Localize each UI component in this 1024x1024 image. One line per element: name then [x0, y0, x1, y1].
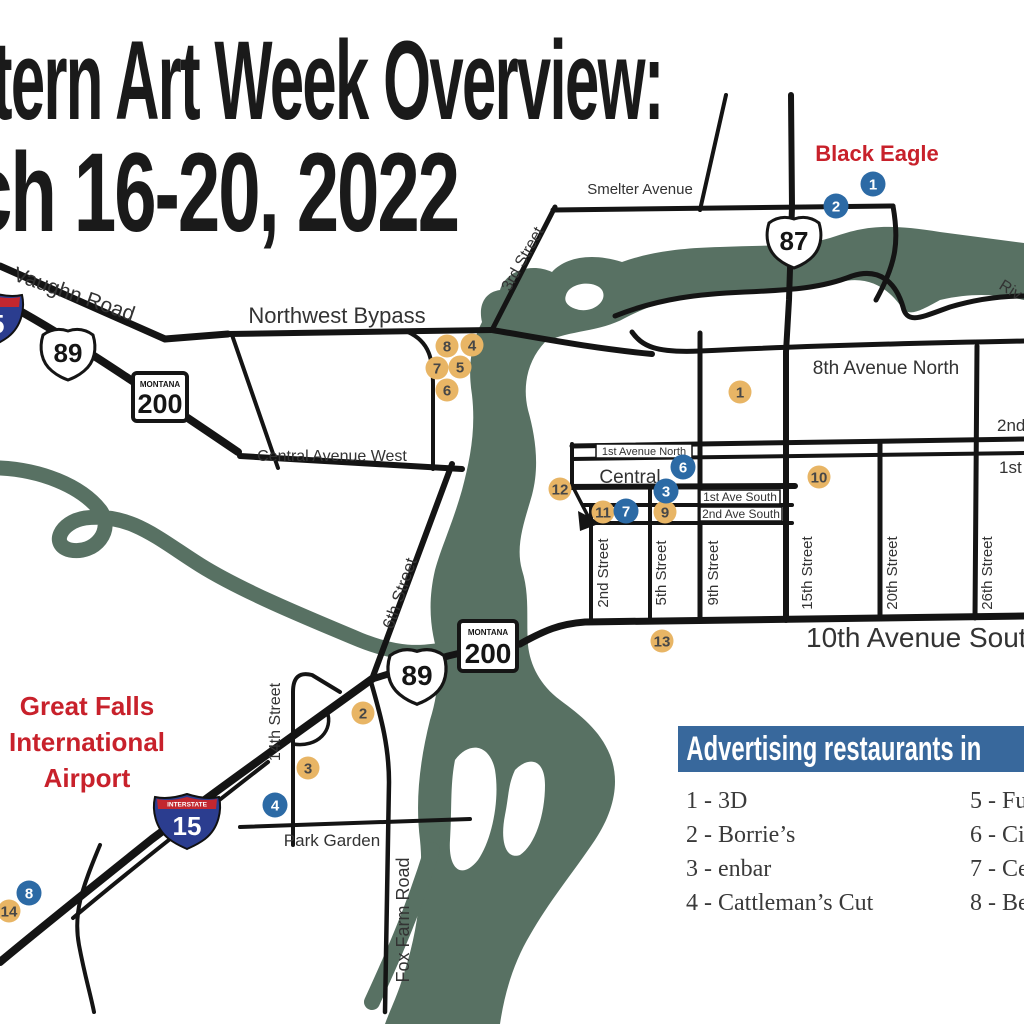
svg-text:13: 13 [654, 634, 671, 651]
road-north-diagonal [700, 95, 726, 210]
svg-text:8: 8 [443, 339, 451, 356]
marker-orange-5: 5 [449, 356, 472, 379]
marker-blue-7: 7 [614, 499, 639, 524]
marker-orange-6: 6 [436, 379, 459, 402]
svg-text:1: 1 [869, 177, 877, 194]
marker-orange-4: 4 [461, 334, 484, 357]
legend-list-left: 1 - 3D2 - Borrie’s3 - enbar4 - Cattleman… [686, 784, 873, 920]
label-6th-street: 6th Street [379, 555, 421, 631]
marker-blue-4: 4 [263, 793, 288, 818]
label-2nd-street: 2nd Street [595, 538, 612, 608]
svg-text:89: 89 [54, 338, 83, 368]
svg-text:87: 87 [780, 226, 809, 256]
road-14th-street [293, 674, 340, 845]
svg-text:2: 2 [359, 706, 367, 723]
svg-text:9: 9 [661, 505, 669, 522]
marker-orange-11: 11 [592, 501, 615, 524]
i-15-shield-edge-fragment: 15 [0, 292, 23, 347]
label-1st-ave-south: 1st Ave South [703, 490, 777, 504]
legend-list-right: 5 - Fu6 - Ci7 - Ce8 - Be [970, 784, 1024, 920]
marker-blue-6: 6 [671, 455, 696, 480]
label-airport-line1: Great Falls [20, 691, 154, 721]
label-2nd-partial: 2nd [997, 416, 1024, 435]
us-89-shield-nw: 89 [41, 329, 95, 380]
poster-title-line2: ch 16-20, 2022 [0, 128, 458, 257]
label-1st-avenue-north: 1st Avenue North [602, 446, 686, 458]
svg-text:6: 6 [443, 383, 451, 400]
i-15-shield: INTERSTATE 15 [154, 794, 220, 849]
marker-orange-2: 2 [352, 702, 375, 725]
svg-text:4: 4 [271, 798, 280, 815]
svg-text:12: 12 [552, 482, 569, 499]
svg-text:11: 11 [595, 505, 611, 522]
marker-orange-14: 14 [0, 900, 21, 923]
road-hwy89-nw [0, 300, 238, 452]
legend-item: 7 - Ce [970, 852, 1024, 886]
marker-blue-8: 8 [17, 881, 42, 906]
marker-orange-3: 3 [297, 757, 320, 780]
road-26th-street [975, 346, 977, 618]
art-week-map-poster: { "title": { "line1": "tern Art Week Ove… [0, 0, 1024, 1024]
svg-text:7: 7 [433, 361, 441, 378]
svg-text:200: 200 [137, 389, 182, 419]
label-central-avenue-west: Central Avenue West [257, 448, 407, 465]
svg-text:INTERSTATE: INTERSTATE [167, 802, 208, 809]
label-8th-avenue-north: 8th Avenue North [813, 358, 959, 379]
label-10th-avenue-south: 10th Avenue South [806, 622, 1024, 653]
label-15th-street: 15th Street [799, 535, 816, 609]
svg-text:6: 6 [679, 460, 687, 477]
label-1st-partial: 1st [999, 458, 1022, 477]
road-3rd-street-west [408, 332, 433, 469]
marker-orange-12: 12 [549, 478, 572, 501]
svg-text:8: 8 [25, 886, 33, 903]
marker-orange-1: 1 [729, 381, 752, 404]
label-20th-street: 20th Street [884, 535, 901, 609]
legend-item: 3 - enbar [686, 852, 873, 886]
marker-orange-9: 9 [654, 501, 677, 524]
svg-text:89: 89 [401, 660, 432, 691]
road-i15-ramp [77, 845, 100, 1012]
label-14th-street: 14th Street [267, 682, 284, 761]
svg-text:2: 2 [832, 199, 840, 216]
legend-item: 6 - Ci [970, 818, 1024, 852]
road-northwest-bypass [228, 330, 492, 334]
marker-blue-1: 1 [861, 172, 886, 197]
marker-orange-8: 8 [436, 335, 459, 358]
legend-item: 5 - Fu [970, 784, 1024, 818]
label-black-eagle: Black Eagle [815, 141, 939, 166]
label-park-garden: Park Garden [284, 831, 380, 850]
svg-text:4: 4 [468, 338, 477, 355]
marker-orange-7: 7 [426, 357, 449, 380]
road-grid-top [632, 332, 1024, 351]
legend-item: 8 - Be [970, 886, 1024, 920]
marker-orange-10: 10 [808, 466, 831, 489]
label-9th-street: 9th Street [705, 540, 722, 606]
svg-text:200: 200 [465, 638, 512, 669]
mt-200-shield-center: MONTANA 200 [459, 621, 517, 671]
label-central: Central [599, 467, 660, 488]
svg-text:MONTANA: MONTANA [140, 380, 181, 389]
svg-text:3: 3 [662, 484, 670, 501]
marker-orange-13: 13 [651, 630, 674, 653]
svg-text:15: 15 [173, 811, 202, 841]
marker-blue-3: 3 [654, 479, 679, 504]
label-airport-line3: Airport [44, 763, 131, 793]
label-5th-street: 5th Street [653, 540, 670, 606]
svg-text:7: 7 [622, 504, 630, 521]
label-smelter-avenue: Smelter Avenue [587, 181, 693, 198]
label-airport-line2: International [9, 727, 165, 757]
poster-title-line1: tern Art Week Overview: [0, 16, 663, 145]
marker-blue-2: 2 [824, 194, 849, 219]
mt-200-shield-nw: MONTANA 200 [133, 373, 187, 421]
svg-text:MONTANA: MONTANA [468, 628, 509, 637]
legend-header-text: Advertising restaurants in [678, 726, 981, 772]
svg-text:1: 1 [736, 385, 744, 402]
legend-item: 1 - 3D [686, 784, 873, 818]
legend-item: 4 - Cattleman’s Cut [686, 886, 873, 920]
label-fox-farm-road: Fox Farm Road [393, 857, 413, 982]
label-northwest-bypass: Northwest Bypass [248, 303, 425, 328]
svg-text:10: 10 [811, 470, 828, 487]
svg-text:15: 15 [0, 309, 4, 339]
label-26th-street: 26th Street [979, 535, 996, 609]
restaurant-legend: Advertising restaurants in 1 - 3D2 - Bor… [678, 726, 1024, 784]
svg-text:14: 14 [1, 904, 18, 921]
label-2nd-ave-south: 2nd Ave South [702, 507, 780, 521]
legend-header: Advertising restaurants in [678, 726, 1024, 772]
svg-text:5: 5 [456, 360, 464, 377]
legend-item: 2 - Borrie’s [686, 818, 873, 852]
svg-text:3: 3 [304, 761, 312, 778]
